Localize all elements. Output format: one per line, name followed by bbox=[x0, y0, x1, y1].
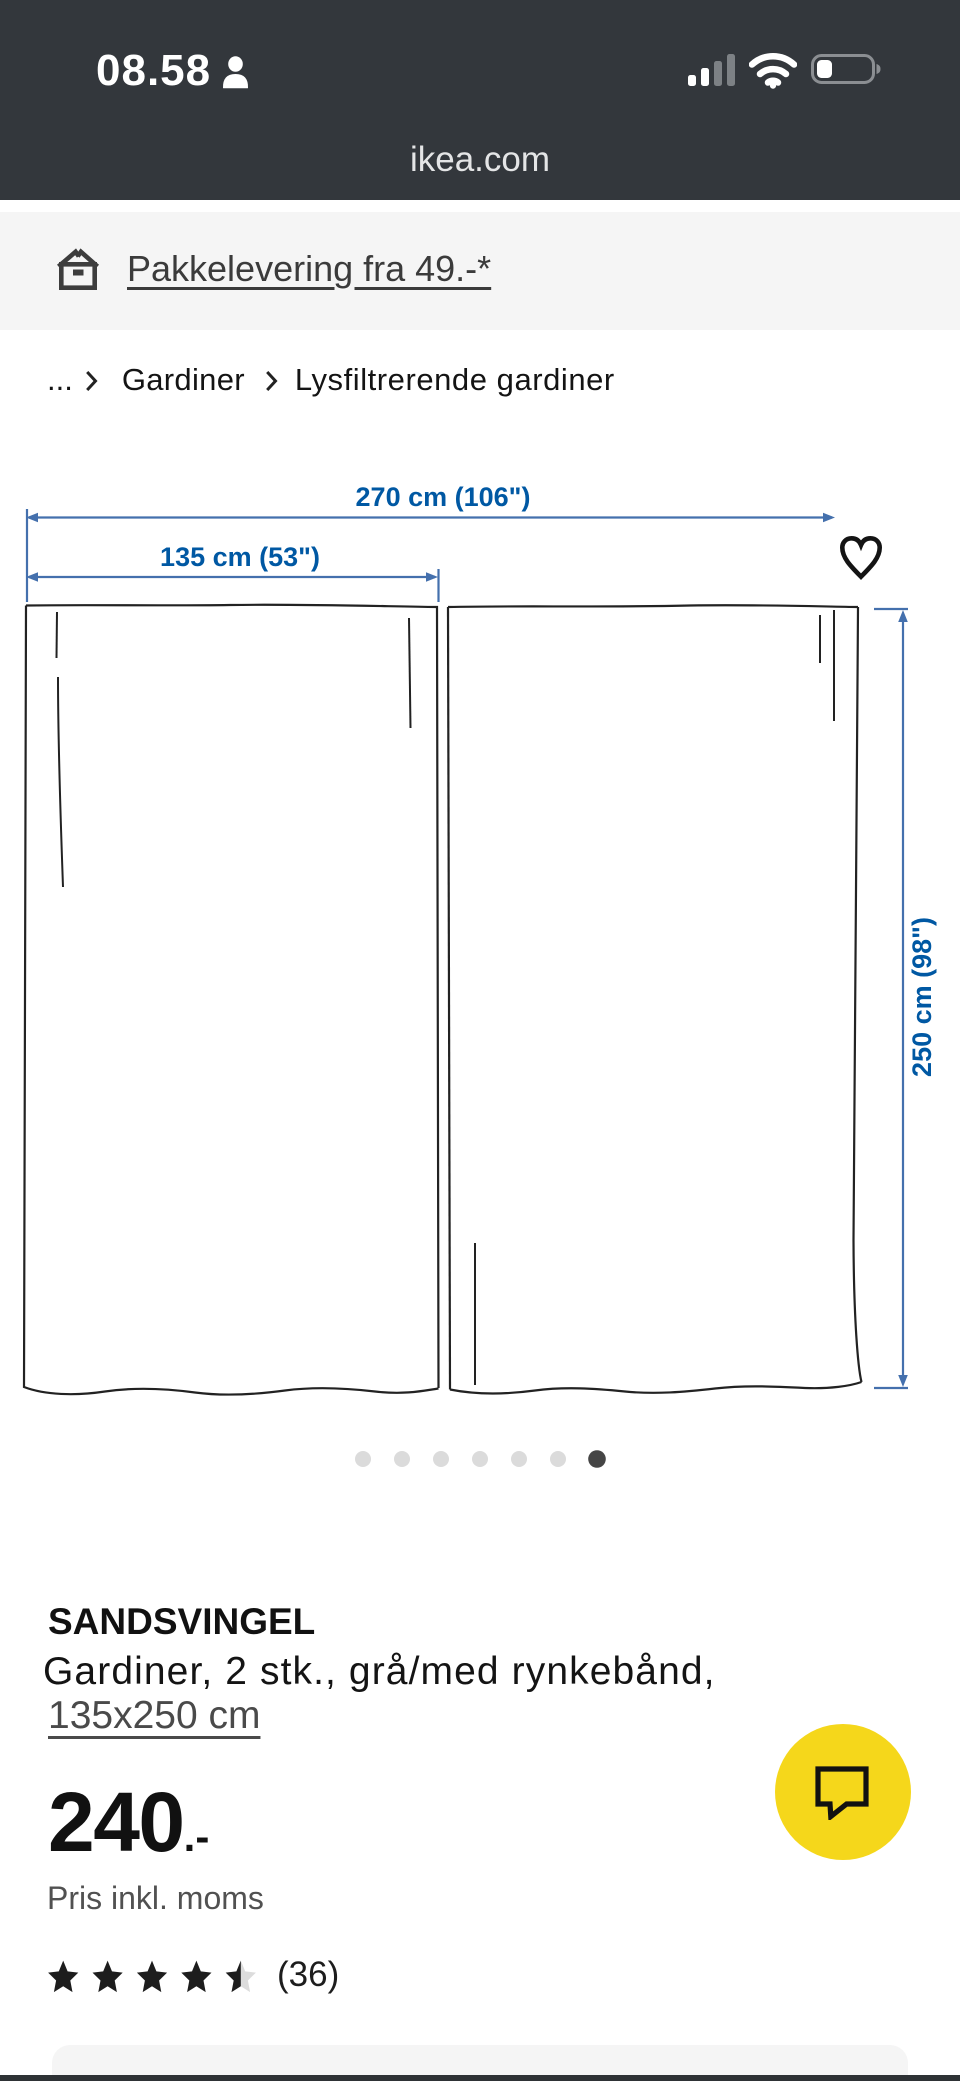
svg-text:270 cm (106"): 270 cm (106") bbox=[356, 482, 531, 512]
svg-text:250 cm (98"): 250 cm (98") bbox=[907, 917, 937, 1077]
svg-text:135 cm (53"): 135 cm (53") bbox=[160, 542, 320, 572]
